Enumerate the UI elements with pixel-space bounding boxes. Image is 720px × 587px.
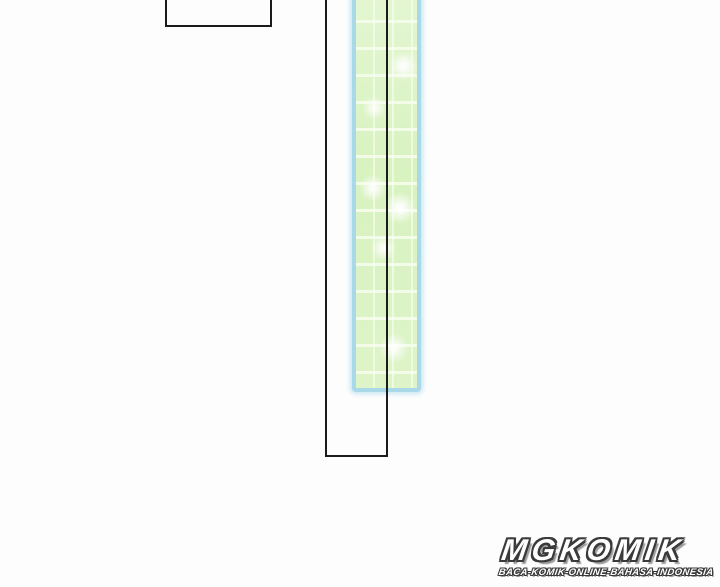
watermark-title: MGKOMIK xyxy=(500,536,704,566)
mgkomik-watermark: MGKOMIK BACA-KOMIK-ONLINE-BAHASA-INDONES… xyxy=(498,536,704,578)
panel-outline-top-left xyxy=(165,0,272,27)
watermark-tagline: BACA-KOMIK-ONLINE-BAHASA-INDONESIA xyxy=(498,568,699,578)
comic-page: MGKOMIK BACA-KOMIK-ONLINE-BAHASA-INDONES… xyxy=(0,0,720,587)
panel-outline-tall xyxy=(325,0,388,457)
